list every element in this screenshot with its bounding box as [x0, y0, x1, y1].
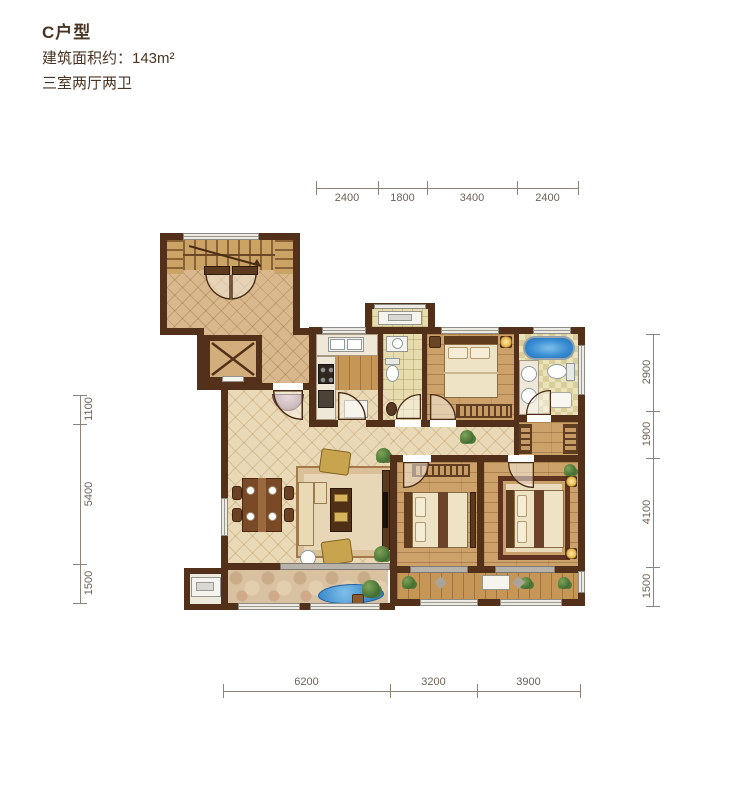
- wall: [197, 328, 204, 390]
- shower-mat: [550, 392, 572, 408]
- kitchen-door-arc: [338, 392, 366, 420]
- pillow: [415, 522, 426, 542]
- dimension-tick: [646, 334, 660, 335]
- wall: [397, 566, 410, 573]
- bedroom3-cabinet: [470, 492, 476, 548]
- wall: [309, 420, 338, 427]
- sliding-door: [280, 563, 390, 570]
- oven: [318, 390, 334, 408]
- floorplan: 2400180034002400620032003900110054001500…: [0, 0, 750, 807]
- dimension-label: 2400: [316, 192, 378, 204]
- stair-side-left: [167, 240, 183, 274]
- wall: [221, 383, 273, 390]
- lamp-glow: [566, 476, 577, 487]
- washer-vent: [388, 314, 412, 321]
- master-bedroom-door-arc: [508, 462, 534, 488]
- window: [221, 498, 228, 536]
- plant: [376, 448, 391, 463]
- dimension-label: 3400: [427, 192, 517, 204]
- dimension-label: 1900: [641, 414, 653, 454]
- wall: [378, 334, 383, 420]
- window: [322, 327, 366, 334]
- stair-side-right: [275, 240, 293, 274]
- plate: [268, 512, 277, 521]
- pillow: [470, 347, 490, 359]
- master-bath-door-arc: [526, 390, 551, 415]
- master-blanket: [534, 490, 544, 548]
- dimension-tick: [580, 684, 581, 698]
- dimension-tick: [578, 181, 579, 195]
- mbath-toilet-tank: [566, 363, 575, 381]
- sink-basin-left: [330, 339, 345, 350]
- wall: [309, 327, 316, 427]
- wall: [422, 334, 427, 420]
- wall: [477, 462, 484, 566]
- wall: [421, 420, 430, 427]
- plate: [268, 486, 277, 495]
- pillow: [415, 497, 426, 517]
- dimension-label: 1500: [641, 566, 653, 606]
- vanity-sink-1: [521, 366, 537, 382]
- pillow: [517, 521, 527, 543]
- stair-door-arcs: [204, 275, 258, 301]
- window: [533, 327, 571, 334]
- wall: [184, 604, 227, 610]
- sofa: [298, 482, 314, 546]
- toilet-bowl: [386, 365, 399, 382]
- bedroom3-door-arc: [403, 462, 429, 488]
- bed3-headboard: [404, 492, 412, 548]
- dimension-tick: [73, 603, 87, 604]
- lamp-glow: [500, 336, 512, 348]
- guest-bath-basin: [392, 338, 403, 349]
- stair-door-right: [232, 266, 258, 275]
- wall: [221, 383, 228, 610]
- wall: [366, 420, 395, 427]
- tray: [334, 512, 348, 522]
- sliding-door: [410, 566, 468, 573]
- stair-door-left: [204, 266, 230, 275]
- wall: [514, 334, 519, 455]
- dimension-label: 5400: [83, 474, 95, 514]
- dimension-line-right: [653, 334, 654, 606]
- dimension-label: 4100: [641, 492, 653, 532]
- lamp-glow: [566, 548, 577, 559]
- elevator-door: [222, 376, 244, 382]
- guest-bath-door-arc: [396, 394, 421, 419]
- plant: [402, 576, 415, 589]
- window: [578, 571, 585, 593]
- balcony-washer: [482, 575, 510, 590]
- dimension-tick: [646, 606, 660, 607]
- window: [500, 599, 562, 606]
- sliding-door: [495, 566, 555, 573]
- dining-chair: [232, 486, 242, 500]
- sofa-chaise: [314, 482, 327, 504]
- wall: [456, 420, 514, 427]
- dimension-label: 3900: [477, 676, 580, 688]
- bed2-fold-line: [444, 372, 498, 374]
- wall: [160, 233, 167, 335]
- dining-chair: [284, 508, 294, 522]
- wall: [293, 233, 300, 335]
- plate: [246, 512, 255, 521]
- window: [310, 603, 380, 610]
- dimension-label: 3200: [390, 676, 477, 688]
- window: [374, 304, 426, 309]
- closet-wardrobe-left: [519, 424, 532, 454]
- wall: [468, 566, 495, 573]
- master-headboard: [506, 490, 514, 548]
- wall: [431, 455, 508, 462]
- plant: [564, 464, 576, 476]
- dimension-label: 1800: [378, 192, 427, 204]
- window: [420, 599, 478, 606]
- dimension-line-top: [316, 188, 578, 189]
- plate: [246, 486, 255, 495]
- tv: [383, 492, 388, 528]
- dimension-tick: [646, 458, 660, 459]
- dimension-label: 2400: [517, 192, 578, 204]
- wall: [519, 415, 527, 422]
- dimension-label: 1100: [83, 389, 95, 429]
- stove: [318, 364, 334, 384]
- dimension-label: 6200: [223, 676, 390, 688]
- corridor-floor: [390, 427, 514, 455]
- window: [578, 345, 585, 395]
- dimension-label: 2900: [641, 352, 653, 392]
- elevator-cross-icon: [210, 341, 256, 377]
- sink-basin-right: [347, 339, 362, 350]
- plant: [460, 430, 474, 444]
- tray: [334, 494, 348, 502]
- armchair: [320, 538, 353, 566]
- bed3-blanket: [438, 492, 448, 548]
- dimension-tick: [646, 411, 660, 412]
- window: [183, 233, 259, 240]
- toilet-tank: [385, 358, 400, 365]
- washer-panel: [196, 582, 214, 591]
- dimension-label: 1500: [83, 563, 95, 603]
- plant: [558, 577, 570, 589]
- wall: [534, 455, 585, 462]
- entry-door-arc: [273, 390, 303, 420]
- mbath-toilet-bowl: [547, 364, 567, 379]
- dimension-line-left: [80, 395, 81, 603]
- dimension-line-bottom: [223, 691, 580, 692]
- wall: [221, 563, 280, 570]
- bed2-headboard: [444, 336, 498, 344]
- wall: [184, 568, 227, 574]
- dining-chair: [284, 486, 294, 500]
- nightstand: [429, 336, 441, 348]
- window: [238, 603, 300, 610]
- armchair: [318, 448, 351, 476]
- elevator-hall-floor: [262, 335, 309, 383]
- wall: [390, 455, 397, 606]
- bathtub: [523, 336, 575, 360]
- table-runner: [258, 478, 266, 532]
- pillow: [517, 495, 527, 517]
- bedroom2-door-arc: [430, 394, 456, 420]
- plant: [374, 546, 390, 562]
- bedroom2-wardrobe: [456, 404, 512, 418]
- dining-chair: [232, 508, 242, 522]
- window: [441, 327, 499, 334]
- closet-wardrobe-right: [563, 424, 578, 454]
- plant: [362, 580, 380, 598]
- floorplan-canvas: C户型 建筑面积约：143m² 三室两厅两卫: [0, 0, 750, 807]
- pillow: [448, 347, 468, 359]
